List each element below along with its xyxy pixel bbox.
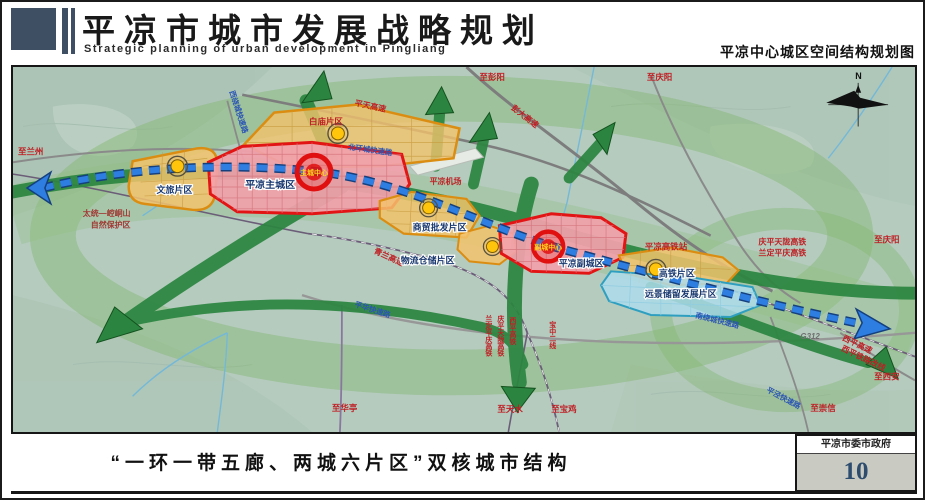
page-number: 10 bbox=[797, 454, 915, 490]
label-to-tianshui: 至天水 bbox=[497, 404, 523, 414]
page-subtitle: Strategic planning of urban development … bbox=[84, 43, 447, 55]
main-city-center-symbol: 主城中心 bbox=[297, 155, 331, 189]
organization-name: 平凉市委市政府 bbox=[797, 436, 915, 454]
label-to-pengyang: 至彭阳 bbox=[479, 72, 504, 82]
compass-n-label: N bbox=[855, 71, 861, 81]
label-district-wuliu: 物流仓储片区 bbox=[401, 254, 455, 265]
label-to-qingyang-top: 至庆阳 bbox=[647, 72, 672, 82]
label-district-yuanjing: 远景储留发展片区 bbox=[645, 288, 717, 299]
label-airport: 平凉机场 bbox=[430, 176, 462, 186]
map-canvas: 主城中心 副城中心 N 至兰州 至彭阳 至庆阳 bbox=[13, 67, 915, 432]
logo-bar bbox=[71, 8, 75, 54]
label-to-lanzhou: 至兰州 bbox=[18, 146, 43, 156]
label-nature-reserve-1: 太统—崆峒山 bbox=[83, 208, 131, 218]
label-to-baoji: 至宝鸡 bbox=[551, 404, 577, 414]
header: 平凉市城市发展战略规划 Strategic planning of urban … bbox=[2, 2, 925, 64]
org-page-box: 平凉市委市政府 10 bbox=[795, 434, 917, 491]
sub-city-center-symbol: 副城中心 bbox=[533, 232, 563, 262]
map-caption: “一环一带五廊、两城六片区”双核城市结构 bbox=[81, 448, 601, 475]
label-qingping-tianlong-hsr: 庆平天陇高铁 bbox=[758, 237, 807, 247]
map-title: 平凉中心城区空间结构规划图 bbox=[720, 42, 915, 62]
sub-center-label: 副城中心 bbox=[534, 243, 562, 252]
logo-bar bbox=[62, 8, 68, 54]
label-to-xian: 至西安 bbox=[874, 371, 900, 381]
label-to-qingyang-right: 至庆阳 bbox=[874, 235, 899, 245]
label-district-gaotie: 高铁片区 bbox=[659, 267, 695, 278]
planning-document-page: 平凉市城市发展战略规划 Strategic planning of urban … bbox=[0, 0, 925, 500]
label-hsr-station: 平凉高铁站 bbox=[645, 242, 688, 252]
label-baozhong2-vertical: 宝中二线 bbox=[549, 320, 556, 350]
label-nature-reserve-2: 自然保护区 bbox=[91, 220, 131, 230]
label-district-shangmao: 商贸批发片区 bbox=[413, 222, 467, 233]
footer: “一环一带五廊、两城六片区”双核城市结构 平凉市委市政府 10 bbox=[11, 434, 917, 494]
label-g312: G312 bbox=[800, 332, 820, 341]
label-district-wenlv: 文旅片区 bbox=[156, 184, 193, 195]
logo-square bbox=[11, 8, 56, 50]
label-district-fucheng: 平凉副城区 bbox=[559, 257, 604, 268]
main-center-label: 主城中心 bbox=[300, 168, 328, 177]
label-to-chongxin: 至崇信 bbox=[810, 403, 836, 413]
label-landing-pingqing-hsr: 兰定平庆高铁 bbox=[759, 247, 807, 257]
label-district-main-city: 平凉主城区 bbox=[245, 178, 295, 191]
planning-map: 主城中心 副城中心 N 至兰州 至彭阳 至庆阳 bbox=[11, 65, 917, 434]
label-district-baimiao: 白庙片区 bbox=[309, 117, 343, 127]
label-to-huating: 至华亭 bbox=[332, 403, 358, 413]
